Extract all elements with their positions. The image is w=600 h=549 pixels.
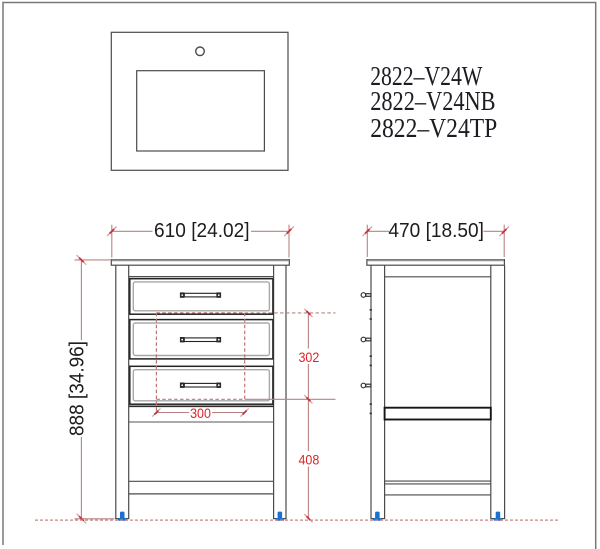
svg-text:2822–V24TP: 2822–V24TP: [370, 112, 497, 143]
svg-text:610 [24.02]: 610 [24.02]: [154, 220, 250, 243]
svg-text:408: 408: [298, 452, 319, 468]
svg-text:302: 302: [298, 349, 319, 365]
svg-text:888 [34.96]: 888 [34.96]: [66, 341, 89, 436]
svg-text:470 [18.50]: 470 [18.50]: [388, 220, 484, 243]
svg-text:300: 300: [190, 405, 211, 421]
